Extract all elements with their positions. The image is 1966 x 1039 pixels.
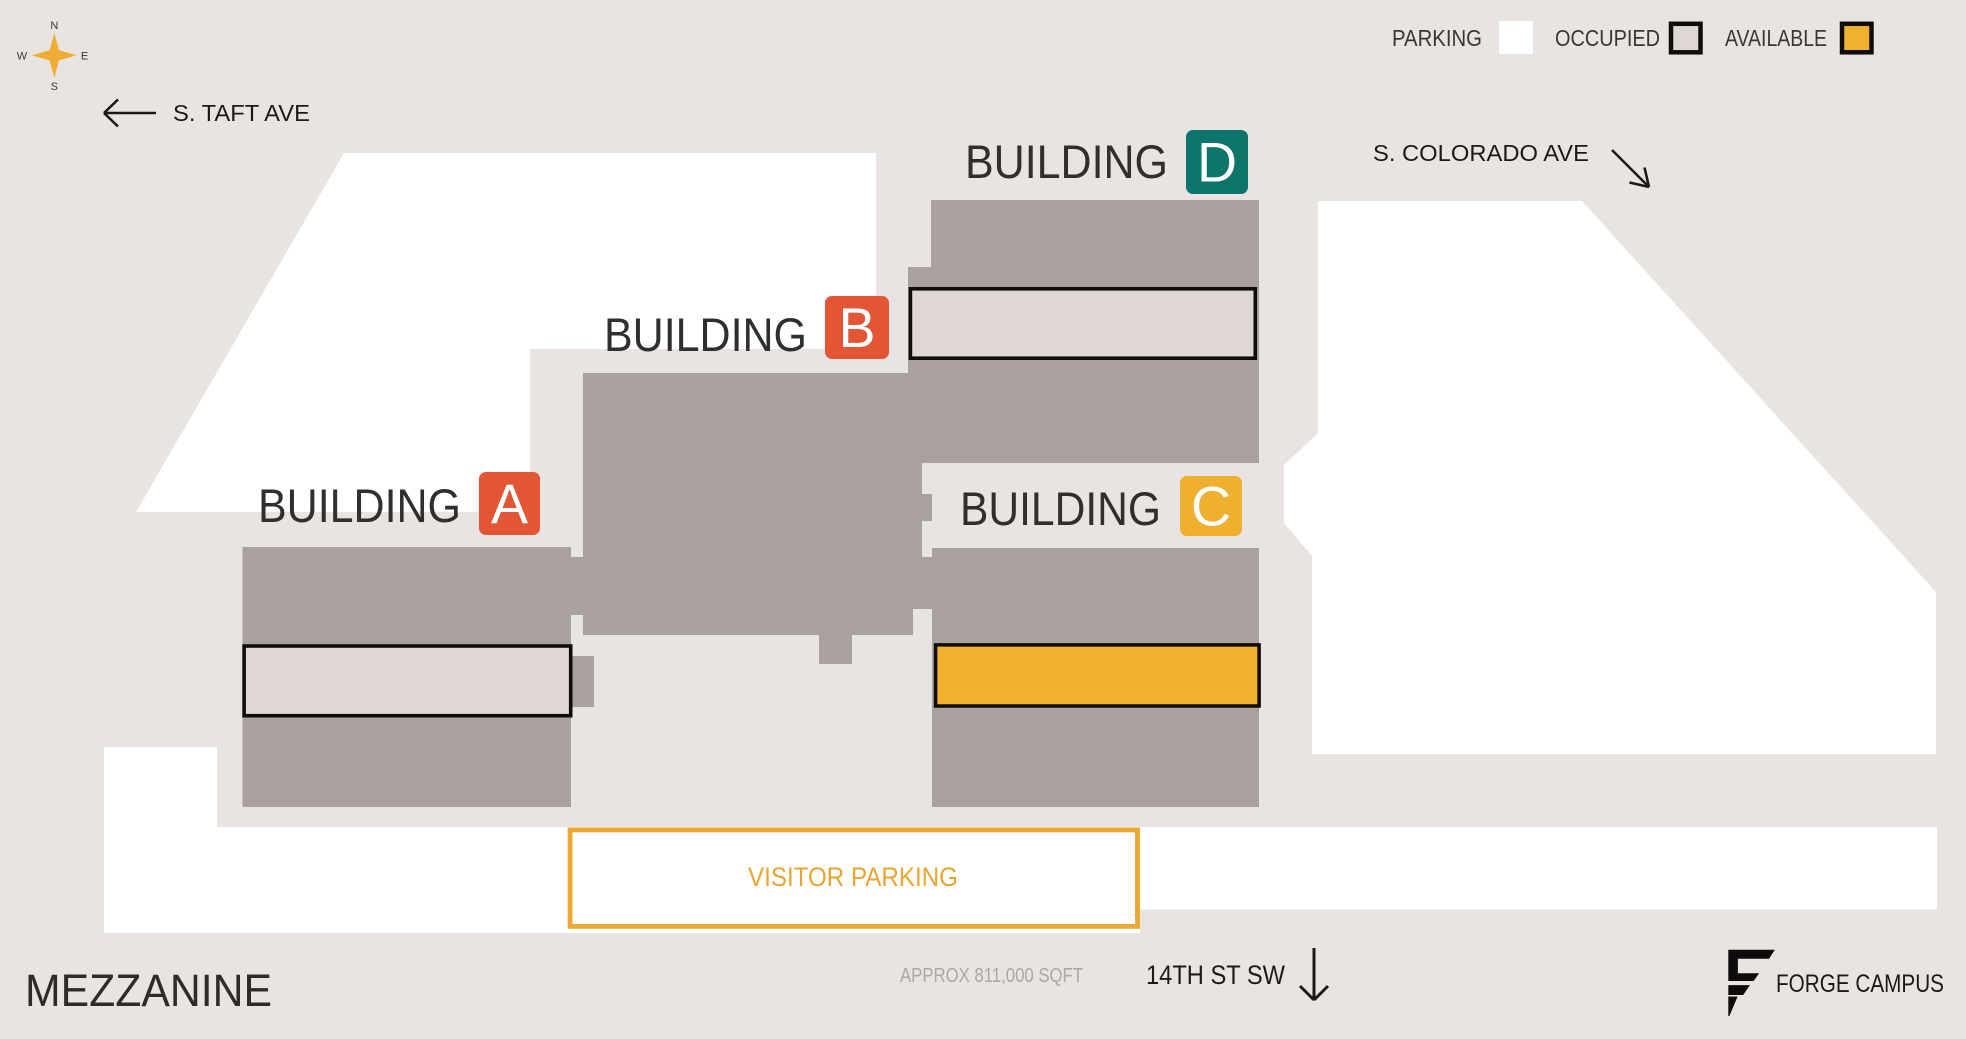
svg-text:BUILDING: BUILDING (258, 479, 461, 532)
svg-text:A: A (491, 473, 528, 535)
svg-text:BUILDING: BUILDING (965, 135, 1168, 188)
svg-text:N: N (50, 20, 58, 32)
svg-text:APPROX 811,000 SQFT: APPROX 811,000 SQFT (900, 965, 1083, 987)
svg-text:C: C (1191, 476, 1231, 538)
svg-text:MEZZANINE: MEZZANINE (25, 965, 272, 1016)
svg-text:W: W (17, 51, 28, 63)
svg-text:S: S (51, 81, 58, 93)
svg-text:VISITOR PARKING: VISITOR PARKING (748, 862, 958, 892)
svg-text:S. COLORADO AVE: S. COLORADO AVE (1373, 140, 1589, 166)
svg-text:FORGE CAMPUS: FORGE CAMPUS (1776, 970, 1944, 998)
svg-text:D: D (1197, 132, 1237, 194)
svg-text:E: E (81, 51, 88, 63)
svg-text:BUILDING: BUILDING (604, 308, 807, 361)
svg-text:S. TAFT AVE: S. TAFT AVE (173, 100, 310, 126)
svg-text:AVAILABLE: AVAILABLE (1725, 25, 1827, 51)
svg-text:B: B (838, 297, 875, 359)
svg-text:PARKING: PARKING (1392, 25, 1482, 51)
svg-text:BUILDING: BUILDING (960, 482, 1161, 535)
svg-text:14TH ST SW: 14TH ST SW (1146, 960, 1285, 990)
svg-text:OCCUPIED: OCCUPIED (1555, 25, 1660, 51)
